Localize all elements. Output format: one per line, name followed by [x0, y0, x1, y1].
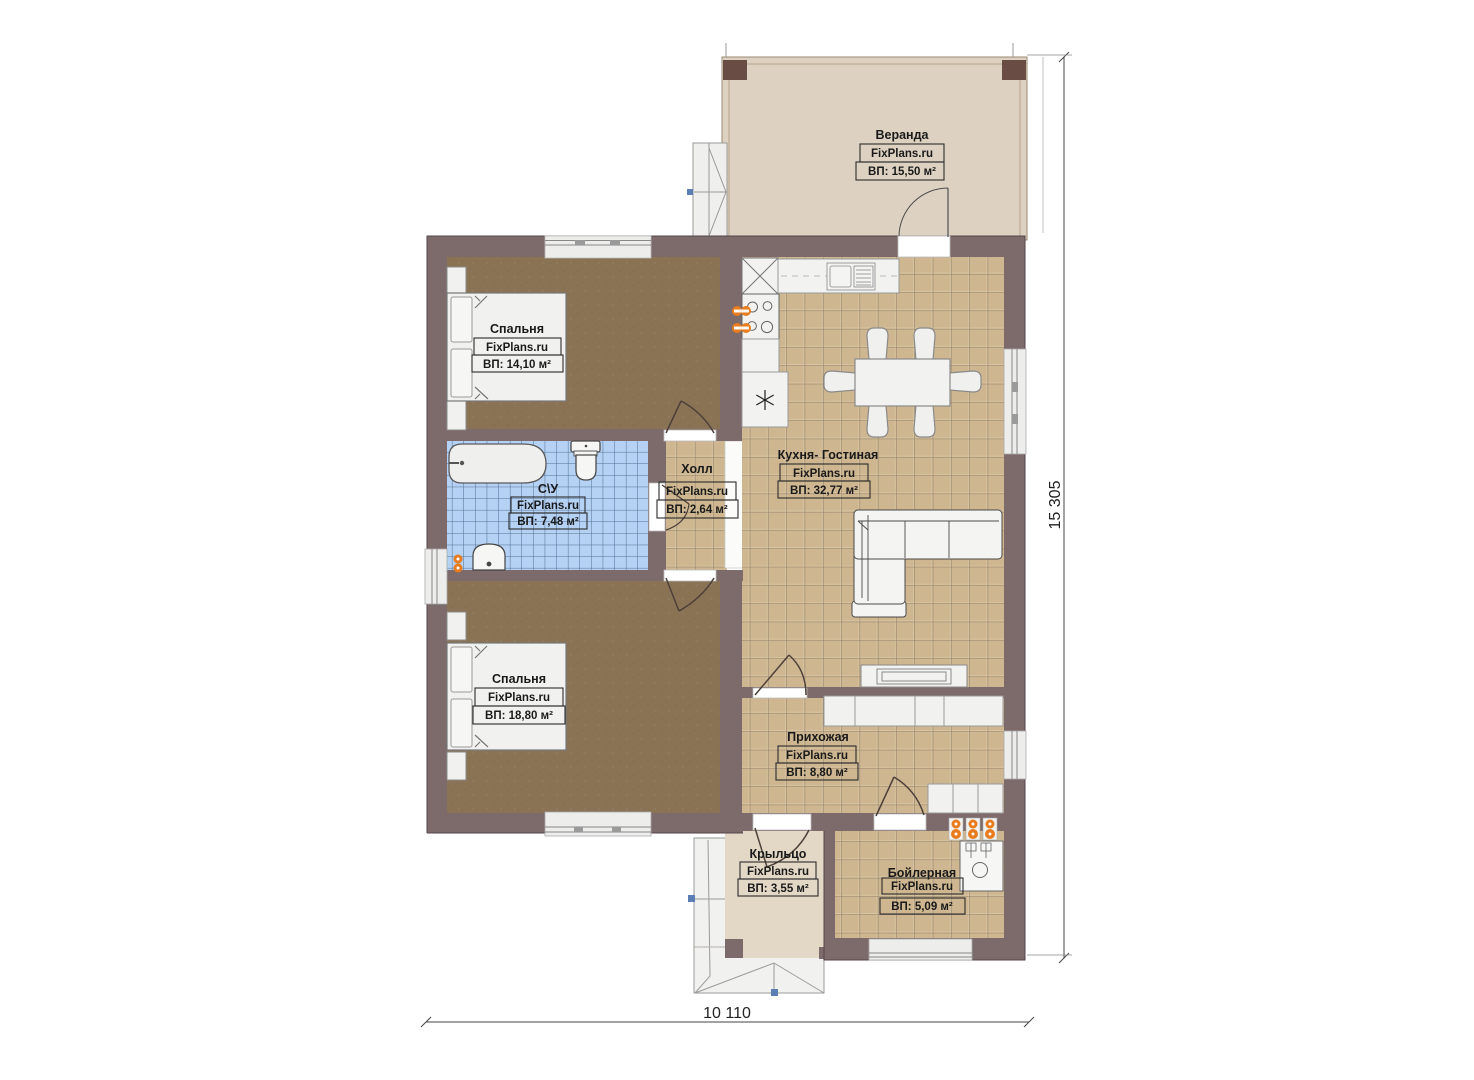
svg-text:Спальня: Спальня [492, 672, 546, 686]
svg-text:15 305: 15 305 [1047, 480, 1064, 529]
svg-text:ВП: 14,10 м²: ВП: 14,10 м² [483, 359, 551, 371]
svg-text:ВП: 32,77 м²: ВП: 32,77 м² [790, 485, 858, 497]
svg-text:FixPlans.ru: FixPlans.ru [488, 692, 550, 704]
svg-text:ВП: 8,80 м²: ВП: 8,80 м² [786, 767, 848, 779]
svg-text:Крыльцо: Крыльцо [750, 847, 807, 861]
svg-text:FixPlans.ru: FixPlans.ru [793, 468, 855, 480]
svg-text:ВП: 3,55 м²: ВП: 3,55 м² [747, 883, 809, 895]
svg-text:FixPlans.ru: FixPlans.ru [486, 342, 548, 354]
svg-text:ВП: 5,09 м²: ВП: 5,09 м² [891, 901, 953, 913]
svg-text:FixPlans.ru: FixPlans.ru [871, 148, 933, 160]
svg-text:Кухня- Гостиная: Кухня- Гостиная [778, 448, 879, 462]
svg-text:FixPlans.ru: FixPlans.ru [747, 866, 809, 878]
svg-text:ВП: 15,50 м²: ВП: 15,50 м² [868, 166, 936, 178]
svg-text:FixPlans.ru: FixPlans.ru [666, 486, 728, 498]
svg-text:FixPlans.ru: FixPlans.ru [786, 750, 848, 762]
svg-text:Веранда: Веранда [875, 128, 929, 142]
svg-text:FixPlans.ru: FixPlans.ru [891, 881, 953, 893]
svg-text:ВП: 18,80 м²: ВП: 18,80 м² [485, 710, 553, 722]
svg-text:10 110: 10 110 [703, 1005, 751, 1022]
svg-text:Холл: Холл [681, 462, 712, 476]
svg-text:FixPlans.ru: FixPlans.ru [517, 500, 579, 512]
svg-text:ВП: 7,48 м²: ВП: 7,48 м² [517, 516, 579, 528]
svg-text:С\У: С\У [538, 482, 559, 496]
svg-text:Спальня: Спальня [490, 322, 544, 336]
svg-text:Прихожая: Прихожая [787, 730, 849, 744]
svg-text:ВП: 2,64 м²: ВП: 2,64 м² [666, 504, 728, 516]
